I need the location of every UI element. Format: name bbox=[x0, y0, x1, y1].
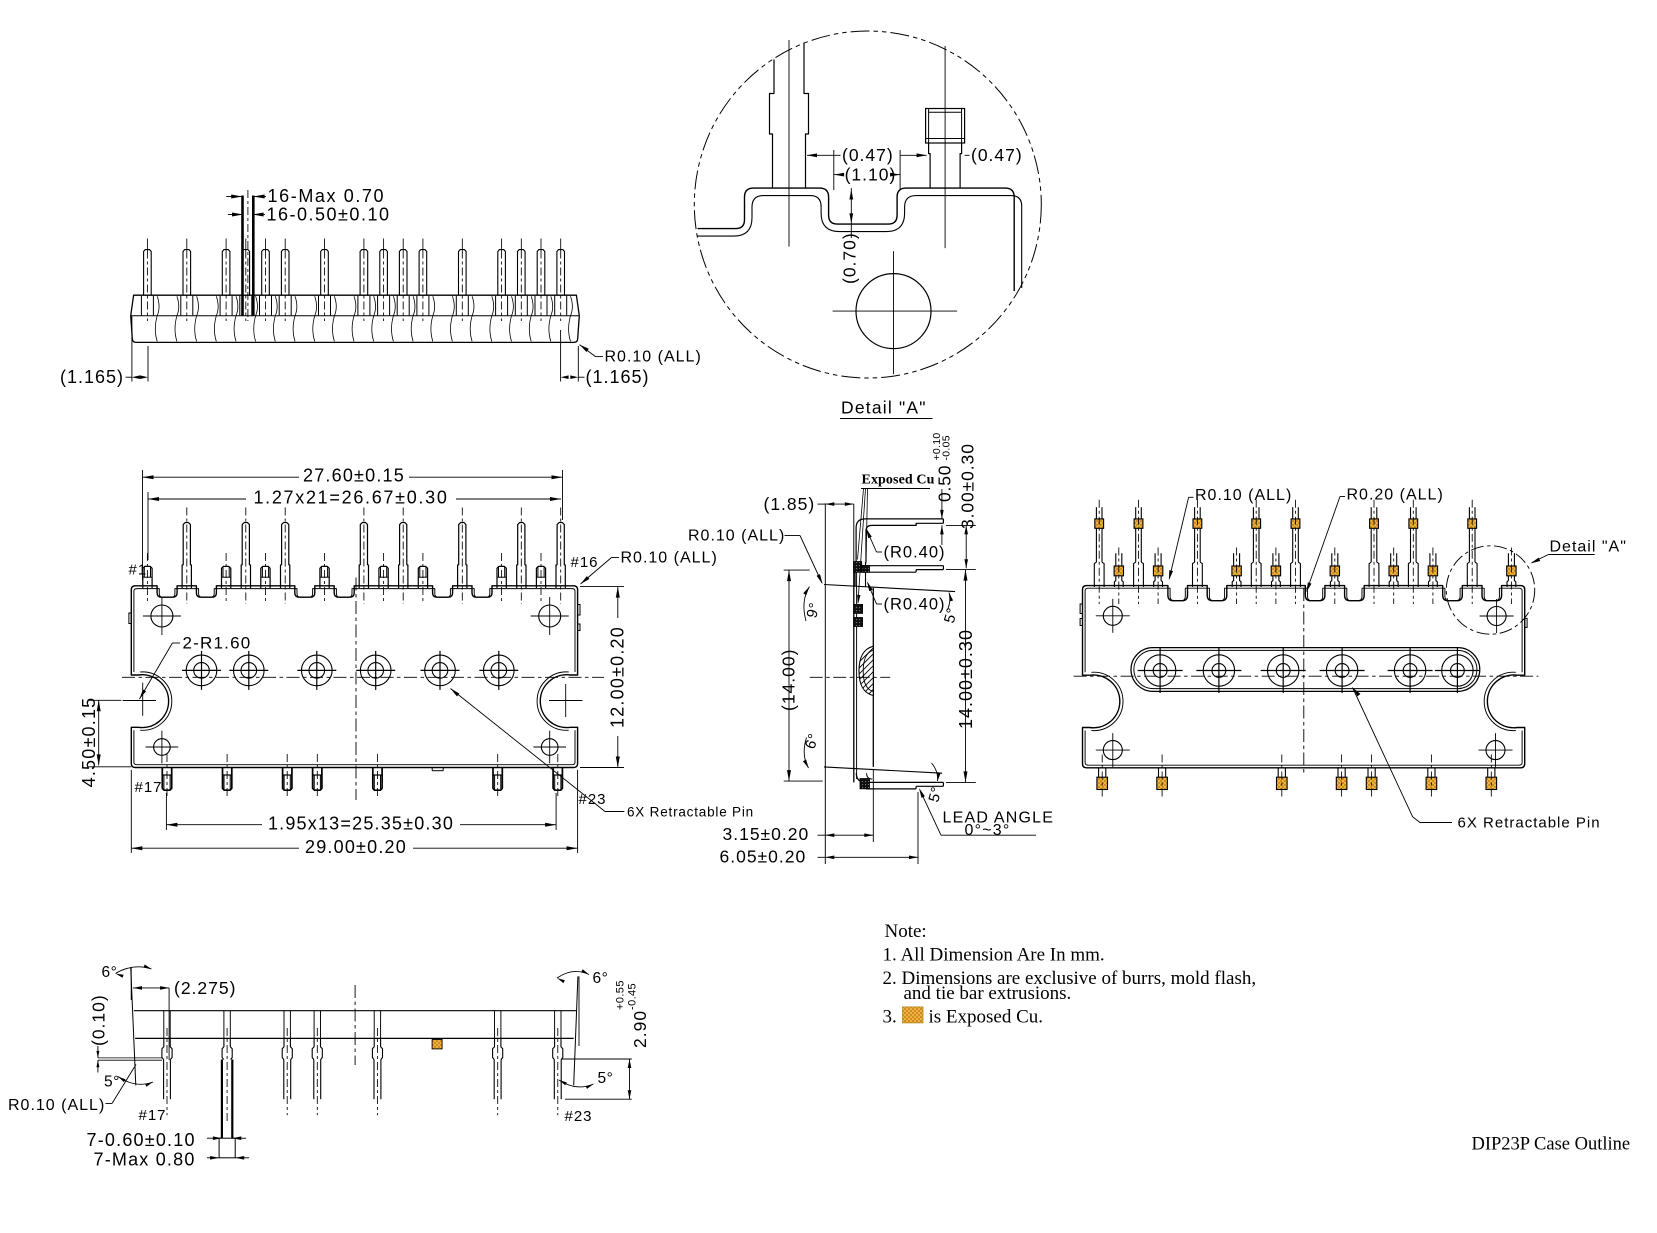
svg-text:6X Retractable Pin: 6X Retractable Pin bbox=[627, 805, 754, 820]
svg-text:0.50: 0.50 bbox=[935, 465, 955, 502]
svg-text:1.27x21=26.67±0.30: 1.27x21=26.67±0.30 bbox=[253, 488, 448, 508]
svg-text:5°: 5° bbox=[104, 1074, 120, 1091]
svg-text:6X Retractable Pin: 6X Retractable Pin bbox=[1458, 815, 1601, 832]
svg-text:Detail "A": Detail "A" bbox=[1550, 539, 1627, 556]
svg-text:(2.275): (2.275) bbox=[174, 978, 236, 998]
svg-text:-0.45: -0.45 bbox=[627, 983, 639, 1010]
svg-text:(0.10): (0.10) bbox=[89, 994, 109, 1046]
svg-text:29.00±0.20: 29.00±0.20 bbox=[305, 837, 407, 857]
svg-text:3.00±0.30: 3.00±0.30 bbox=[958, 443, 978, 529]
svg-text:1.95x13=25.35±0.30: 1.95x13=25.35±0.30 bbox=[268, 813, 454, 833]
svg-text:7-0.60±0.10: 7-0.60±0.10 bbox=[87, 1130, 196, 1150]
svg-text:DIP23P Case Outline: DIP23P Case Outline bbox=[1472, 1135, 1631, 1155]
svg-text:(R0.40): (R0.40) bbox=[884, 544, 946, 562]
svg-text:5°: 5° bbox=[598, 1070, 614, 1087]
svg-text:R0.10 (ALL): R0.10 (ALL) bbox=[8, 1097, 105, 1114]
svg-text:4.50±0.15: 4.50±0.15 bbox=[79, 697, 99, 788]
svg-text:Note:: Note: bbox=[885, 921, 927, 942]
svg-text:is Exposed Cu.: is Exposed Cu. bbox=[929, 1007, 1044, 1028]
svg-text:0°~3°: 0°~3° bbox=[965, 822, 1011, 839]
svg-text:R0.20 (ALL): R0.20 (ALL) bbox=[1347, 487, 1444, 504]
svg-text:6°: 6° bbox=[593, 970, 609, 987]
svg-text:#17: #17 bbox=[139, 1107, 167, 1124]
svg-text:16-Max 0.70: 16-Max 0.70 bbox=[268, 186, 386, 206]
svg-text:(0.47): (0.47) bbox=[971, 145, 1023, 165]
svg-text:Exposed Cu: Exposed Cu bbox=[862, 473, 935, 488]
svg-text:(0.47): (0.47) bbox=[842, 145, 894, 165]
svg-text:27.60±0.15: 27.60±0.15 bbox=[303, 466, 405, 486]
svg-text:(1.85): (1.85) bbox=[764, 494, 816, 514]
svg-text:+0.55: +0.55 bbox=[615, 980, 627, 1010]
svg-text:and tie bar extrusions.: and tie bar extrusions. bbox=[904, 983, 1072, 1004]
svg-text:#17: #17 bbox=[135, 779, 163, 796]
svg-text:#23: #23 bbox=[565, 1108, 593, 1125]
svg-text:16-0.50±0.10: 16-0.50±0.10 bbox=[267, 205, 391, 225]
svg-text:2-R1.60: 2-R1.60 bbox=[183, 634, 252, 653]
svg-text:#16: #16 bbox=[571, 554, 599, 571]
svg-text:1. All Dimension Are In mm.: 1. All Dimension Are In mm. bbox=[883, 945, 1105, 966]
svg-text:R0.10 (ALL): R0.10 (ALL) bbox=[621, 550, 718, 567]
svg-text:2.90: 2.90 bbox=[630, 1010, 650, 1048]
svg-text:(1.10): (1.10) bbox=[845, 165, 897, 185]
svg-text:#1: #1 bbox=[129, 562, 148, 579]
svg-text:6°: 6° bbox=[102, 964, 118, 981]
svg-text:(0.70): (0.70) bbox=[840, 232, 860, 284]
svg-text:(1.165): (1.165) bbox=[60, 367, 124, 387]
svg-text:3.: 3. bbox=[883, 1007, 897, 1028]
svg-text:R0.10 (ALL): R0.10 (ALL) bbox=[688, 528, 785, 545]
svg-text:R0.10 (ALL): R0.10 (ALL) bbox=[605, 349, 702, 366]
svg-text:R0.10 (ALL): R0.10 (ALL) bbox=[1195, 487, 1292, 504]
svg-text:(1.165): (1.165) bbox=[586, 367, 650, 387]
svg-text:(R0.40): (R0.40) bbox=[884, 596, 946, 614]
svg-text:7-Max 0.80: 7-Max 0.80 bbox=[94, 1150, 196, 1170]
svg-text:3.15±0.20: 3.15±0.20 bbox=[723, 824, 810, 844]
svg-text:(14.00): (14.00) bbox=[779, 649, 799, 711]
svg-text:-0.05: -0.05 bbox=[941, 435, 953, 460]
svg-text:6.05±0.20: 6.05±0.20 bbox=[720, 846, 807, 866]
svg-text:Detail "A": Detail "A" bbox=[841, 398, 927, 418]
svg-text:14.00±0.30: 14.00±0.30 bbox=[956, 629, 976, 729]
svg-text:12.00±0.20: 12.00±0.20 bbox=[608, 626, 628, 728]
